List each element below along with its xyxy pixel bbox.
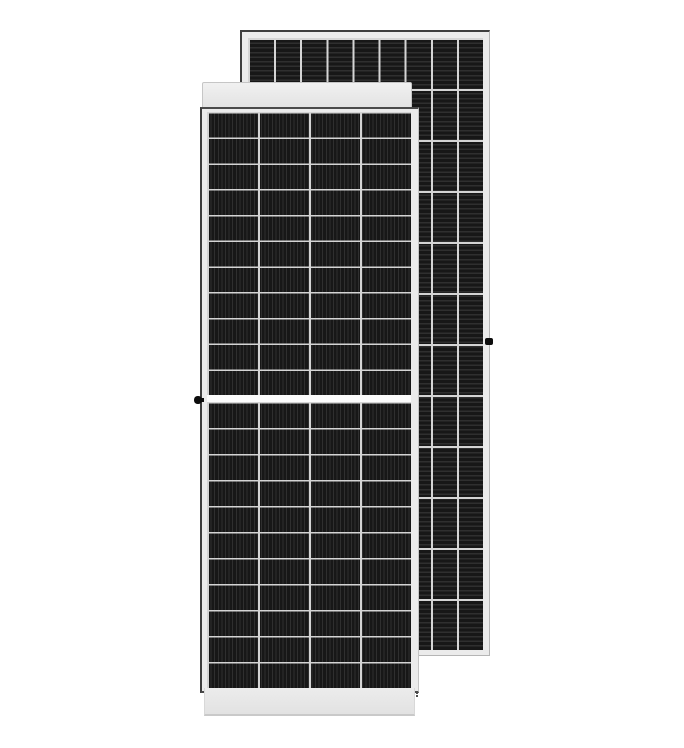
solar-panel-front [200,107,419,693]
frame-screw-front [194,396,202,404]
front-panel-bottom-frame [204,688,415,716]
frame-screw-rear [485,338,493,345]
product-image [0,0,684,748]
front-panel-top-frame [202,82,412,109]
solar-cells-grid-front [207,112,411,688]
half-cell-center-divider [207,395,411,402]
front-cells-bottom-half [207,402,411,688]
front-cells-top-half [207,112,411,395]
